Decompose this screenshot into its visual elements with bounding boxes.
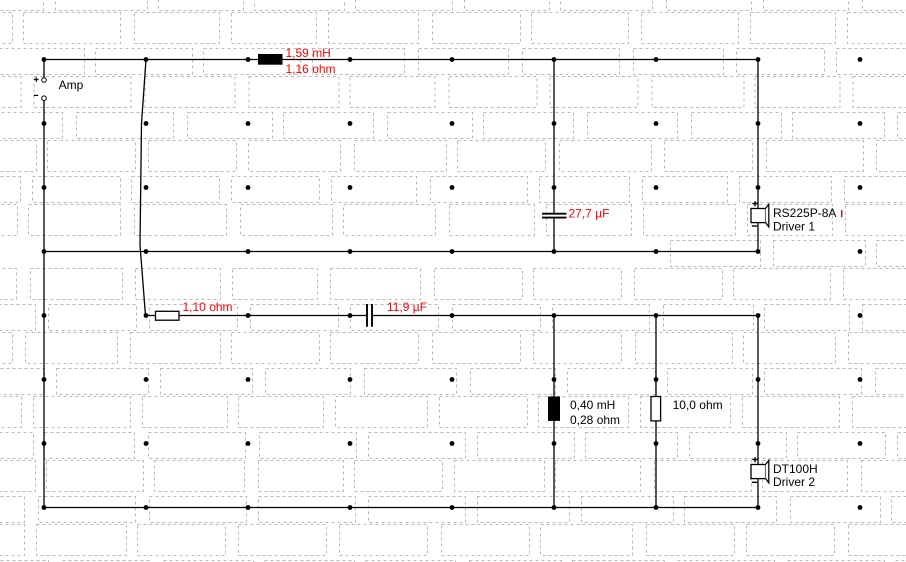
svg-text:DT100H: DT100H: [773, 462, 818, 476]
svg-text:RS225P-8A: RS225P-8A: [773, 206, 836, 220]
svg-text:11,9 µF: 11,9 µF: [387, 300, 427, 314]
svg-text:Amp: Amp: [59, 78, 84, 92]
svg-text:1,16 ohm: 1,16 ohm: [286, 62, 336, 76]
svg-text:0,28 ohm: 0,28 ohm: [570, 413, 620, 427]
svg-text:Driver 1: Driver 1: [773, 219, 815, 233]
svg-text:Driver 2: Driver 2: [773, 475, 815, 489]
svg-text:27,7 µF: 27,7 µF: [569, 206, 610, 220]
svg-text:10,0 ohm: 10,0 ohm: [673, 398, 723, 412]
svg-text:1,59 mH: 1,59 mH: [286, 46, 331, 60]
svg-text:1,10 ohm: 1,10 ohm: [183, 300, 233, 314]
svg-text:0,40 mH: 0,40 mH: [570, 398, 615, 412]
